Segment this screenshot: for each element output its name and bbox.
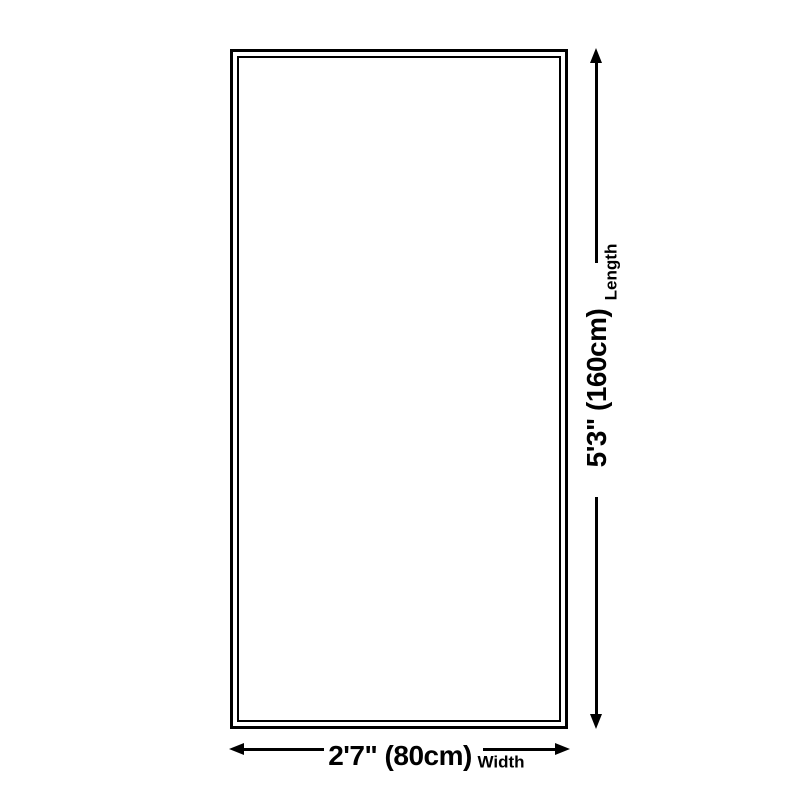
product-outline [230, 49, 568, 729]
length-axis-label: Length [603, 244, 620, 301]
width-value-label: 2'7" (80cm) [328, 742, 472, 770]
dimension-diagram: Length 5'3" (160cm) 2'7" (80cm) Width [0, 0, 800, 800]
length-value-label: 5'3" (160cm) [583, 309, 611, 468]
arrow-right-icon [555, 743, 570, 755]
width-axis-label: Width [477, 754, 524, 771]
product-outline-inner [237, 56, 561, 722]
width-dimension-line-right [483, 748, 557, 751]
width-dimension-line-left [243, 748, 324, 751]
length-dimension-line-top [595, 61, 598, 263]
arrow-left-icon [229, 743, 244, 755]
length-dimension-line-bottom [595, 497, 598, 716]
arrow-down-icon [590, 714, 602, 729]
